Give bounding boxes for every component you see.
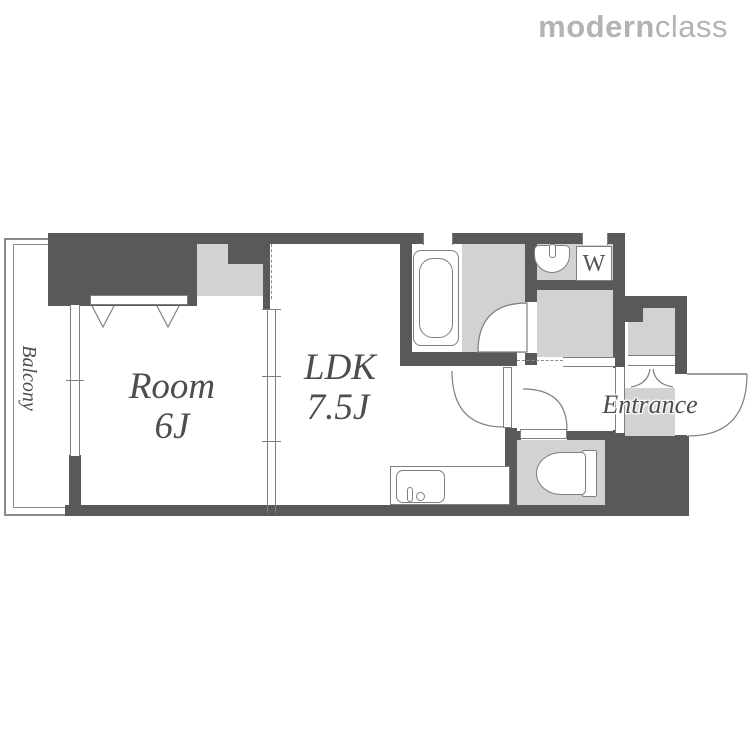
wall xyxy=(65,505,517,516)
upper-storage-fill-a xyxy=(197,243,228,296)
toilet-icon xyxy=(536,452,586,495)
doorway-washroom xyxy=(525,302,537,353)
folding-door-arc xyxy=(631,369,673,387)
bathtub-inner xyxy=(419,258,453,338)
wall xyxy=(400,243,412,357)
room-size-label: 6J xyxy=(102,408,242,445)
shoe-cabinet-fill-b xyxy=(628,322,675,355)
ldk-name-label: LDK xyxy=(270,349,410,386)
brand-logo: modernclass xyxy=(538,9,728,45)
washbasin-faucet-icon xyxy=(549,244,556,258)
closet-door-track xyxy=(90,295,188,305)
ldk-door-leaf xyxy=(503,367,512,428)
window-above-bath xyxy=(423,233,453,245)
kitchen-faucet-knob-icon xyxy=(416,492,425,501)
shoe-cabinet-track xyxy=(628,355,675,366)
pipe-shaft-block xyxy=(605,436,689,516)
room-name-label: Room xyxy=(102,368,242,405)
door-swing-arc xyxy=(523,389,567,430)
sliding-door-tick xyxy=(262,309,281,310)
wall xyxy=(516,505,605,516)
wall xyxy=(69,455,81,507)
room-window-divider xyxy=(66,380,84,381)
entrance-label: Entrance xyxy=(580,392,720,418)
wall xyxy=(613,296,687,308)
open-passage-dashed-line xyxy=(517,360,563,361)
corridor-threshold xyxy=(563,357,615,367)
wall xyxy=(263,240,270,309)
floor-plan: modernclass xyxy=(0,0,750,750)
wall xyxy=(675,308,687,374)
upper-storage-fill-b xyxy=(228,264,263,296)
wall xyxy=(400,352,517,366)
ldk-size-label: 7.5J xyxy=(268,389,408,426)
shoe-cabinet-fill-a xyxy=(643,308,675,322)
closet-door-v-marks xyxy=(92,306,179,327)
open-wall-dashed-line xyxy=(271,244,272,299)
balcony-label: Balcony xyxy=(19,323,39,433)
vanity-counter-front xyxy=(525,280,613,290)
brand-logo-light: class xyxy=(655,9,728,44)
washer-label: W xyxy=(576,252,612,276)
toilet-door-leaf xyxy=(520,429,567,439)
window-above-washer xyxy=(582,233,608,245)
door-swing-arc xyxy=(452,371,504,427)
kitchen-faucet-icon xyxy=(407,487,413,502)
changing-room-fill xyxy=(462,243,525,353)
brand-logo-bold: modern xyxy=(538,9,655,44)
wall xyxy=(625,308,643,322)
sliding-door-tick xyxy=(262,441,281,442)
wall xyxy=(228,243,263,264)
